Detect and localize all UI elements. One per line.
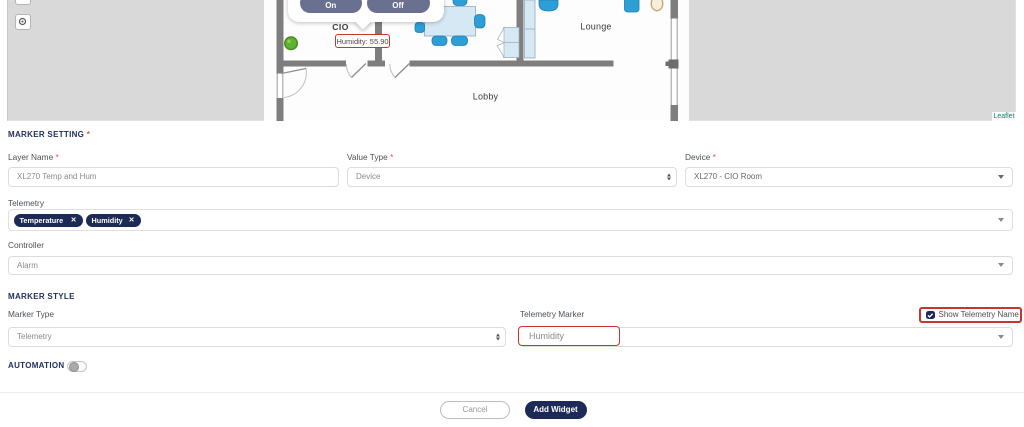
svg-text:Lobby: Lobby: [473, 92, 499, 102]
svg-text:Lounge: Lounge: [580, 22, 611, 32]
